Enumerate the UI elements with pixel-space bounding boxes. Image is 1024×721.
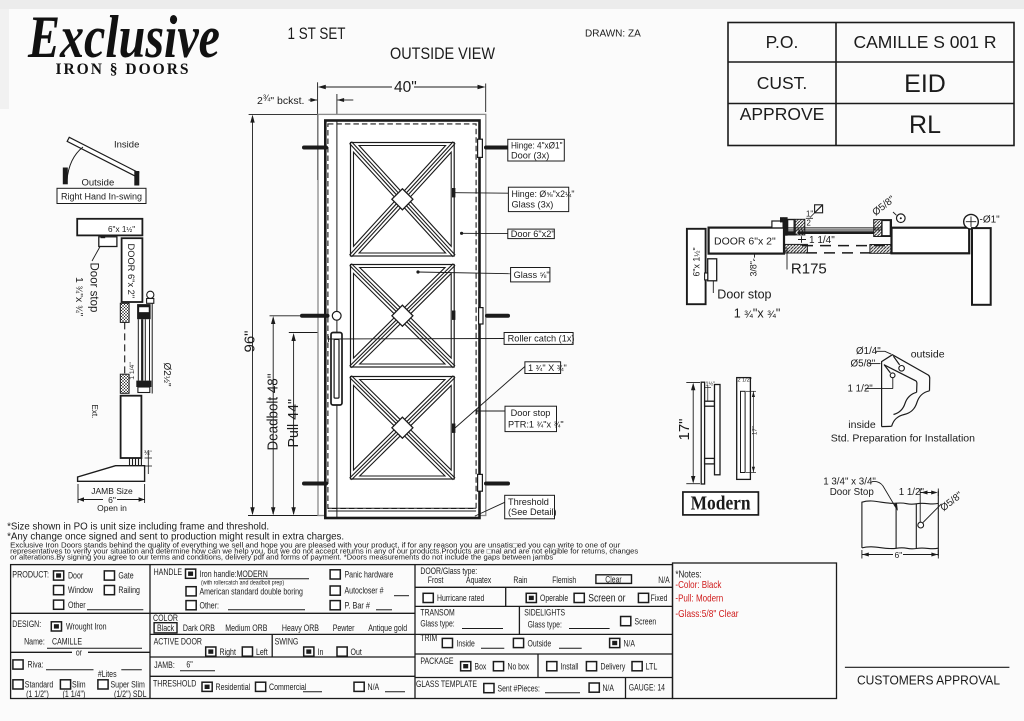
svg-text:Door Stop: Door Stop (830, 487, 875, 498)
svg-text:1 3/4" x 3/4": 1 3/4" x 3/4" (823, 477, 876, 488)
svg-text:#Lites: #Lites (98, 669, 117, 679)
svg-text:-Pull: Modern: -Pull: Modern (675, 594, 723, 605)
svg-text:Glass type:: Glass type: (528, 620, 562, 630)
svg-text:HANDLE: HANDLE (154, 567, 183, 577)
svg-text:JAMB:: JAMB: (154, 660, 175, 670)
svg-text:1": 1" (806, 210, 813, 219)
svg-text:Fixed: Fixed (651, 593, 668, 603)
svg-text:Iron handle:MODERN: Iron handle:MODERN (200, 569, 268, 579)
svg-text:-Color: Black: -Color: Black (675, 580, 722, 591)
svg-text:or: or (76, 648, 82, 658)
svg-text:6"x 1½": 6"x 1½" (692, 247, 702, 276)
svg-text:or alterations.By signing you: or alterations.By signing you agree to o… (10, 553, 553, 562)
svg-text:ACTIVE DOOR: ACTIVE DOOR (154, 637, 203, 647)
svg-text:Door 6"x2": Door 6"x2" (511, 229, 555, 239)
svg-text:Super Slim: Super Slim (111, 680, 145, 690)
svg-text:GLASS TEMPLATE: GLASS TEMPLATE (416, 679, 477, 689)
svg-text:CUST.: CUST. (757, 73, 808, 93)
svg-text:Screen or: Screen or (588, 593, 625, 605)
svg-text:Door (3x): Door (3x) (511, 151, 549, 161)
svg-text:PACKAGE: PACKAGE (420, 656, 453, 666)
svg-text:Window: Window (68, 585, 93, 595)
svg-text:Slim: Slim (72, 680, 86, 690)
svg-text:⅜": ⅜" (144, 450, 152, 457)
svg-text:Outside: Outside (528, 638, 552, 648)
svg-text:6": 6" (895, 550, 903, 560)
svg-text:GAUGE: 14: GAUGE: 14 (629, 682, 665, 692)
svg-text:In: In (318, 647, 324, 657)
svg-text:Glass (3x): Glass (3x) (512, 200, 554, 210)
svg-text:Inside: Inside (114, 140, 139, 151)
svg-text:Std. Preparation for Installat: Std. Preparation for Installation (831, 433, 975, 445)
svg-text:CUSTOMERS APPROVAL: CUSTOMERS APPROVAL (857, 673, 1000, 688)
svg-text:Delivery: Delivery (601, 662, 626, 672)
svg-text:Screen: Screen (635, 617, 657, 627)
svg-text:LTL: LTL (646, 662, 658, 672)
svg-text:Medium ORB: Medium ORB (225, 623, 267, 633)
svg-text:Left: Left (256, 647, 268, 657)
svg-text:1 ¾"x ¾": 1 ¾"x ¾" (734, 307, 781, 321)
svg-text:Ø5/8": Ø5/8" (851, 359, 876, 370)
svg-text:COLOR: COLOR (153, 613, 178, 623)
svg-text:SWING: SWING (275, 637, 299, 647)
svg-text:1 ¾" X ¾": 1 ¾" X ¾" (528, 363, 567, 373)
svg-text:Riva:: Riva: (28, 660, 44, 670)
svg-text:Commercial: Commercial (269, 682, 306, 692)
svg-text:-Glass:5/8" Clear: -Glass:5/8" Clear (675, 609, 739, 620)
svg-text:2: 2 (807, 219, 811, 228)
svg-text:Other:: Other: (200, 600, 220, 610)
svg-text:Modern: Modern (691, 494, 751, 515)
svg-text:CAMILLE: CAMILLE (52, 637, 82, 647)
svg-text:(See Detail): (See Detail) (508, 507, 557, 517)
svg-text:Right Hand In-swing: Right Hand In-swing (61, 191, 142, 201)
svg-text:IRON § DOORS: IRON § DOORS (55, 61, 190, 78)
svg-text:Door stop: Door stop (511, 408, 551, 418)
svg-text:Aquatex: Aquatex (466, 575, 492, 585)
svg-text:40": 40" (394, 79, 417, 96)
svg-text:Ext.: Ext. (90, 405, 99, 419)
svg-text:TRANSOM: TRANSOM (420, 608, 454, 618)
svg-text:PTR:1 ¾"x ¾": PTR:1 ¾"x ¾" (508, 419, 564, 429)
svg-text:Deadbolt 48": Deadbolt 48" (266, 374, 282, 451)
svg-text:Hurricane rated: Hurricane rated (437, 593, 484, 603)
svg-text:N/A: N/A (368, 682, 380, 692)
svg-text:Box: Box (475, 662, 487, 672)
svg-text:OUTSIDE VIEW: OUTSIDE VIEW (390, 45, 495, 63)
svg-text:Frost: Frost (428, 575, 444, 585)
svg-text:1 ¾"x ¾": 1 ¾"x ¾" (73, 277, 85, 317)
svg-text:APPROVE: APPROVE (740, 104, 825, 124)
svg-text:Flemish: Flemish (552, 575, 576, 585)
svg-text:1 1/4": 1 1/4" (129, 362, 136, 380)
svg-text:Threshold: Threshold (508, 497, 549, 507)
svg-text:Outside: Outside (82, 178, 115, 189)
svg-text:1 1/2": 1 1/2" (848, 384, 874, 395)
svg-text:17": 17" (753, 426, 759, 435)
svg-text:Pewter: Pewter (333, 623, 355, 633)
svg-text:Autocloser #: Autocloser # (345, 586, 384, 596)
svg-text:DOOR 6"x 2": DOOR 6"x 2" (714, 236, 776, 248)
svg-text:PRODUCT:: PRODUCT: (12, 570, 49, 580)
svg-text:*Notes:: *Notes: (675, 569, 701, 580)
svg-text:Hinge: 4"xØ1": Hinge: 4"xØ1" (511, 141, 563, 151)
svg-text:Inside: Inside (457, 638, 475, 648)
svg-text:-Ø1": -Ø1" (980, 215, 1001, 226)
svg-text:Door: Door (68, 571, 83, 581)
svg-text:N/A: N/A (624, 638, 635, 648)
svg-text:Gate: Gate (118, 571, 133, 581)
svg-text:EID: EID (904, 70, 946, 98)
svg-text:(1/2") SDL: (1/2") SDL (114, 689, 147, 699)
svg-text:Heavy ORB: Heavy ORB (282, 623, 319, 633)
svg-text:P. Bar #: P. Bar # (345, 600, 370, 610)
svg-text:TRIM: TRIM (420, 633, 437, 643)
svg-text:N/A: N/A (603, 683, 614, 693)
svg-text:DESIGN:: DESIGN: (12, 619, 41, 629)
svg-text:Install: Install (561, 662, 579, 672)
svg-text:outside: outside (911, 349, 945, 361)
svg-text:Residential: Residential (216, 682, 251, 692)
svg-text:P.O.: P.O. (766, 32, 799, 52)
svg-text:Hinge: Ø⅝"x2¼": Hinge: Ø⅝"x2¼" (512, 189, 575, 199)
svg-text:Ø2½": Ø2½" (161, 363, 172, 387)
svg-text:CAMILLE S 001 R: CAMILLE S 001 R (854, 32, 997, 52)
svg-text:Standard: Standard (25, 680, 54, 690)
svg-text:R175: R175 (791, 261, 827, 278)
svg-text:Roller catch (1x): Roller catch (1x) (508, 334, 575, 344)
svg-text:No box: No box (508, 662, 530, 672)
svg-text:Black: Black (157, 623, 175, 633)
svg-text:Glass type:: Glass type: (420, 619, 454, 629)
svg-text:Antique gold: Antique gold (368, 623, 407, 633)
svg-text:THRESHOLD: THRESHOLD (153, 678, 197, 688)
svg-text:inside: inside (848, 419, 876, 431)
svg-text:(with rollercatch and deadbolt: (with rollercatch and deadbolt prep) (201, 579, 284, 586)
svg-text:17": 17" (676, 418, 693, 440)
svg-text:Clear: Clear (605, 574, 621, 584)
svg-text:(1 1/4"): (1 1/4") (63, 689, 86, 699)
svg-text:DOOR 6"x 2": DOOR 6"x 2" (126, 244, 136, 299)
svg-text:6": 6" (186, 659, 192, 669)
svg-text:Railing: Railing (118, 585, 139, 595)
svg-text:Other: Other (68, 600, 86, 610)
svg-text:1 ST SET: 1 ST SET (288, 25, 346, 43)
svg-text:Sent #Pieces:: Sent #Pieces: (498, 683, 540, 693)
svg-text:2 1/2": 2 1/2" (738, 378, 752, 384)
svg-text:RL: RL (909, 111, 941, 139)
svg-text:Panic hardware: Panic hardware (345, 570, 394, 580)
svg-text:Wrought Iron: Wrought Iron (66, 622, 107, 632)
svg-text:1½": 1½" (706, 381, 716, 388)
svg-text:Door stop: Door stop (717, 288, 771, 302)
svg-text:Out: Out (351, 647, 363, 657)
svg-text:SIDELIGHTS: SIDELIGHTS (524, 608, 565, 618)
svg-text:American standard double borin: American standard double boring (200, 586, 303, 596)
svg-text:Glass ⅝": Glass ⅝" (514, 270, 550, 280)
svg-text:Operable: Operable (540, 593, 568, 603)
svg-text:Door stop: Door stop (88, 263, 100, 313)
svg-text:Rain: Rain (513, 575, 527, 585)
svg-text:Name:: Name: (24, 637, 45, 647)
svg-text:DRAWN: ZA: DRAWN: ZA (585, 29, 641, 40)
svg-text:6"x 1½": 6"x 1½" (108, 225, 135, 234)
svg-text:Open in: Open in (97, 503, 127, 513)
svg-text:96": 96" (242, 330, 259, 352)
svg-text:Right: Right (220, 647, 237, 657)
svg-text:Pull 44": Pull 44" (286, 399, 302, 448)
svg-text:(1 1/2"): (1 1/2") (26, 689, 49, 699)
svg-text:3/8"-: 3/8"- (749, 258, 759, 276)
svg-text:1 1/4": 1 1/4" (809, 235, 835, 246)
svg-text:Dark ORB: Dark ORB (183, 623, 215, 633)
svg-text:N/A: N/A (658, 575, 669, 585)
